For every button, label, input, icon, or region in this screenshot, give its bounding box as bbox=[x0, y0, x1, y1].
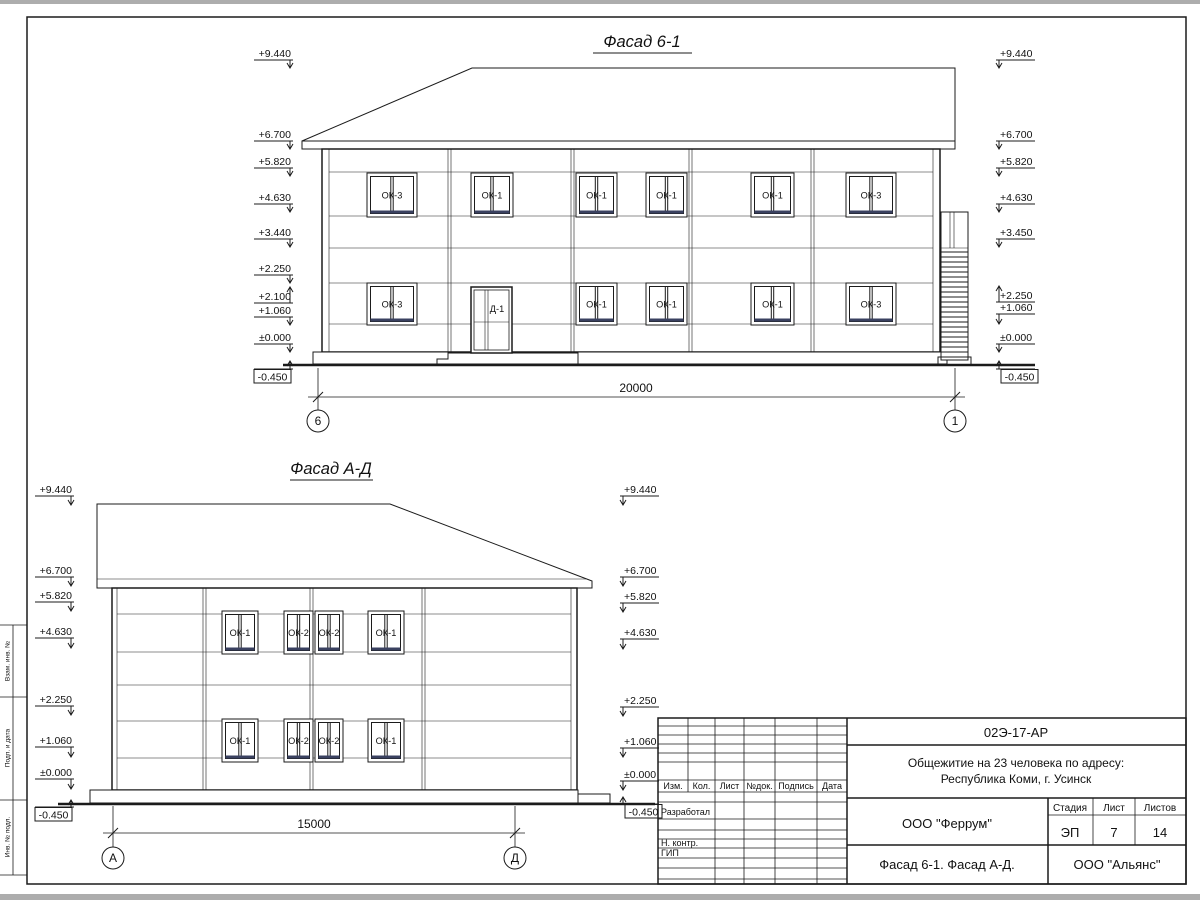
window-label: ОК-2 bbox=[319, 736, 340, 746]
elevation-mark: +3.440 bbox=[254, 227, 293, 247]
window: ОК-2 bbox=[315, 611, 343, 654]
elevation-mark: +2.250 bbox=[254, 263, 293, 283]
project-name-line2: Республика Коми, г. Усинск bbox=[941, 772, 1092, 786]
elevation-mark-value: +5.820 bbox=[259, 156, 292, 168]
elevation-mark: +1.060 bbox=[254, 305, 293, 325]
windows-lower-row: ОК-1ОК-2ОК-2ОК-1 bbox=[222, 719, 404, 762]
elevation-mark: ±0.000 bbox=[996, 332, 1035, 352]
col-header-kol: Кол. bbox=[693, 781, 711, 791]
window-label: ОК-1 bbox=[656, 300, 677, 310]
elevation-mark: +6.700 bbox=[254, 129, 293, 149]
window: ОК-3 bbox=[846, 173, 896, 217]
elevation-mark: ±0.000 bbox=[620, 769, 659, 790]
window: ОК-1 bbox=[751, 283, 794, 325]
design-org: ООО "Феррум" bbox=[902, 816, 992, 831]
elevation-mark-value: +3.450 bbox=[1000, 227, 1033, 239]
elevation-mark: +2.250 bbox=[35, 694, 74, 715]
row-label-gip: ГИП bbox=[661, 848, 679, 858]
elevation-mark-value: +4.630 bbox=[624, 627, 657, 639]
window-label: ОК-1 bbox=[376, 628, 397, 638]
window: ОК-1 bbox=[368, 611, 404, 654]
elevation-mark: -0.450 bbox=[620, 797, 662, 819]
elevation-mark-value: +2.250 bbox=[40, 694, 73, 706]
elevation-mark-value: +3.440 bbox=[259, 227, 292, 239]
window: ОК-1 bbox=[646, 173, 687, 217]
title-block-columns bbox=[688, 718, 817, 884]
window: ОК-1 bbox=[576, 283, 617, 325]
window-label: ОК-1 bbox=[230, 628, 251, 638]
windows-upper-row: ОК-1ОК-2ОК-2ОК-1 bbox=[222, 611, 404, 654]
window: ОК-1 bbox=[368, 719, 404, 762]
facade-a-d-title: Фасад А-Д bbox=[290, 460, 372, 478]
elevation-mark-value: -0.450 bbox=[1005, 372, 1035, 384]
elevation-marks-right: +9.440+6.700+5.820+4.630+2.250+1.060±0.0… bbox=[620, 484, 662, 819]
contractor-org: ООО "Альянс" bbox=[1074, 857, 1161, 872]
axis-label-right: 1 bbox=[952, 414, 959, 428]
elevation-mark-value: +2.250 bbox=[624, 695, 657, 707]
facade-6-1: Фасад 6-1 Д-1 ОК-3ОК-1ОК-1ОК-1ОК-1ОК-3 О… bbox=[254, 33, 1038, 432]
document-number: 02Э-17-АР bbox=[984, 725, 1048, 740]
elevation-mark-value: +1.060 bbox=[624, 736, 657, 748]
drawing-title: Фасад 6-1. Фасад А-Д. bbox=[879, 857, 1015, 872]
elevation-mark-value: ±0.000 bbox=[40, 767, 72, 779]
plinth bbox=[313, 352, 947, 364]
sheet-number: 7 bbox=[1110, 825, 1117, 840]
side-step bbox=[578, 794, 610, 803]
dimension-20000: 20000 6 1 bbox=[307, 368, 966, 432]
window-label: ОК-1 bbox=[656, 191, 677, 201]
window-label: ОК-1 bbox=[230, 736, 251, 746]
sheet-header: Лист bbox=[1103, 803, 1125, 814]
window: ОК-1 bbox=[222, 611, 258, 654]
elevation-mark-value: +9.440 bbox=[259, 48, 292, 60]
elevation-mark-value: +4.630 bbox=[40, 626, 73, 638]
elevation-marks-left: +9.440+6.700+5.820+4.630+3.440+2.250+2.1… bbox=[254, 48, 293, 384]
window-label: ОК-1 bbox=[376, 736, 397, 746]
elevation-mark: +6.700 bbox=[996, 129, 1035, 149]
axis-label-left: 6 bbox=[315, 414, 322, 428]
window-label: ОК-1 bbox=[762, 300, 783, 310]
col-header-izm: Изм. bbox=[663, 781, 682, 791]
elevation-mark-value: +9.440 bbox=[624, 484, 657, 496]
elevation-mark: +6.700 bbox=[35, 565, 74, 586]
elevation-mark-value: +4.630 bbox=[259, 192, 292, 204]
screen-edge-top bbox=[0, 0, 1200, 4]
elevation-mark-value: ±0.000 bbox=[259, 332, 291, 344]
elevation-mark: +2.250 bbox=[996, 286, 1035, 302]
elevation-mark-value: +9.440 bbox=[1000, 48, 1033, 60]
door-frame bbox=[471, 287, 512, 353]
elevation-marks-left: +9.440+6.700+5.820+4.630+2.250+1.060±0.0… bbox=[35, 484, 74, 822]
drawing-sheet: Взам. инв. № Подп. и дата Инв. № подл. Ф… bbox=[0, 0, 1200, 900]
col-header-podpis: Подпись bbox=[778, 781, 814, 791]
elevation-mark: ±0.000 bbox=[254, 332, 293, 352]
window-label: ОК-3 bbox=[382, 300, 403, 310]
elevation-mark-value: ±0.000 bbox=[1000, 332, 1032, 344]
elevation-mark: +5.820 bbox=[996, 156, 1035, 176]
plinth bbox=[90, 790, 578, 803]
elevation-mark-value: +1.060 bbox=[1000, 302, 1033, 314]
elevation-mark-value: +2.250 bbox=[259, 263, 292, 275]
elevation-mark: +4.630 bbox=[254, 192, 293, 212]
stage-header: Стадия bbox=[1053, 803, 1087, 814]
col-header-list: Лист bbox=[720, 781, 740, 791]
elevation-mark-value: +1.060 bbox=[259, 305, 292, 317]
window-label: ОК-2 bbox=[319, 628, 340, 638]
window-label: ОК-3 bbox=[861, 300, 882, 310]
window-label: ОК-3 bbox=[861, 191, 882, 201]
window: ОК-1 bbox=[751, 173, 794, 217]
elevation-mark-value: +4.630 bbox=[1000, 192, 1033, 204]
window: ОК-3 bbox=[367, 173, 417, 217]
window: ОК-2 bbox=[315, 719, 343, 762]
sheets-total: 14 bbox=[1153, 825, 1167, 840]
col-header-ndok: №док. bbox=[746, 781, 772, 791]
axis-label-right: Д bbox=[511, 851, 519, 865]
window: ОК-1 bbox=[471, 173, 513, 217]
col-header-data: Дата bbox=[822, 781, 842, 791]
facade-a-d: Фасад А-Д ОК-1ОК-2ОК-2ОК-1 ОК-1ОК-2ОК-2О… bbox=[35, 460, 662, 869]
elevation-mark-value: -0.450 bbox=[258, 372, 288, 384]
window-label: ОК-3 bbox=[382, 191, 403, 201]
fire-escape-ladder bbox=[938, 212, 971, 365]
side-stamp-label: Подп. и дата bbox=[5, 728, 12, 767]
elevation-mark-value: +2.100 bbox=[259, 291, 292, 303]
elevation-mark: +2.100 bbox=[254, 287, 293, 303]
window-label: ОК-2 bbox=[288, 736, 309, 746]
elevation-mark: +1.060 bbox=[35, 735, 74, 757]
window: ОК-1 bbox=[646, 283, 687, 325]
title-block-rows bbox=[658, 726, 847, 879]
elevation-mark-value: -0.450 bbox=[629, 807, 659, 819]
ladder-frame bbox=[941, 212, 968, 360]
elevation-mark: +1.060 bbox=[996, 302, 1035, 324]
door-label: Д-1 bbox=[490, 304, 504, 314]
window: ОК-1 bbox=[222, 719, 258, 762]
elevation-mark: +9.440 bbox=[254, 48, 293, 68]
elevation-mark: +5.820 bbox=[35, 590, 74, 611]
wall bbox=[112, 588, 577, 790]
elevation-mark: +9.440 bbox=[996, 48, 1035, 68]
screen-edge-bottom bbox=[0, 894, 1200, 900]
elevation-mark-value: +5.820 bbox=[1000, 156, 1033, 168]
side-stamp-label: Взам. инв. № bbox=[5, 641, 12, 681]
elevation-mark-value: +5.820 bbox=[624, 591, 657, 603]
dimension-value: 15000 bbox=[297, 817, 331, 831]
elevation-mark: +4.630 bbox=[996, 192, 1035, 212]
window: ОК-3 bbox=[846, 283, 896, 325]
window: ОК-2 bbox=[284, 719, 313, 762]
elevation-mark: +4.630 bbox=[35, 626, 74, 648]
elevation-mark: +6.700 bbox=[620, 565, 659, 586]
row-label-nkontr: Н. контр. bbox=[661, 838, 698, 848]
window: ОК-2 bbox=[284, 611, 313, 654]
window-label: ОК-1 bbox=[586, 300, 607, 310]
elevation-mark-value: +6.700 bbox=[1000, 129, 1033, 141]
dimension-value: 20000 bbox=[619, 381, 653, 395]
window-label: ОК-1 bbox=[586, 191, 607, 201]
side-stamp-label: Инв. № подл. bbox=[5, 817, 12, 858]
eaves-band bbox=[302, 141, 955, 149]
title-block: 02Э-17-АР Общежитие на 23 человека по ад… bbox=[658, 718, 1186, 884]
elevation-mark-value: +2.250 bbox=[1000, 290, 1033, 302]
axis-label-left: А bbox=[109, 851, 117, 865]
entrance-door: Д-1 bbox=[471, 287, 512, 353]
roof bbox=[97, 504, 592, 588]
elevation-mark: +2.250 bbox=[620, 695, 659, 716]
drawing-canvas: Взам. инв. № Подп. и дата Инв. № подл. Ф… bbox=[0, 0, 1200, 900]
elevation-mark: ±0.000 bbox=[35, 767, 74, 789]
elevation-mark: +9.440 bbox=[620, 484, 659, 505]
elevation-mark: +1.060 bbox=[620, 736, 659, 757]
window: ОК-3 bbox=[367, 283, 417, 325]
elevation-marks-right: +9.440+6.700+5.820+4.630+3.450+2.250+1.0… bbox=[996, 48, 1038, 384]
elevation-mark: +4.630 bbox=[620, 627, 659, 649]
elevation-mark-value: ±0.000 bbox=[624, 769, 656, 781]
stage-value: ЭП bbox=[1061, 825, 1080, 840]
elevation-mark-value: +5.820 bbox=[40, 590, 73, 602]
elevation-mark-value: +6.700 bbox=[259, 129, 292, 141]
facade-6-1-title: Фасад 6-1 bbox=[603, 33, 680, 51]
elevation-mark: +3.450 bbox=[996, 227, 1035, 247]
elevation-mark: +9.440 bbox=[35, 484, 74, 505]
row-label-razrabotal: Разработал bbox=[661, 807, 710, 817]
elevation-mark-value: -0.450 bbox=[39, 810, 69, 822]
window-label: ОК-2 bbox=[288, 628, 309, 638]
elevation-mark-value: +1.060 bbox=[40, 735, 73, 747]
window-label: ОК-1 bbox=[482, 191, 503, 201]
elevation-mark-value: +6.700 bbox=[624, 565, 657, 577]
elevation-mark-value: +9.440 bbox=[40, 484, 73, 496]
project-name-line1: Общежитие на 23 человека по адресу: bbox=[908, 756, 1124, 770]
roof bbox=[302, 68, 955, 141]
elevation-mark-value: +6.700 bbox=[40, 565, 73, 577]
window-label: ОК-1 bbox=[762, 191, 783, 201]
sheets-header: Листов bbox=[1144, 803, 1177, 814]
window: ОК-1 bbox=[576, 173, 617, 217]
elevation-mark: +5.820 bbox=[254, 156, 293, 176]
elevation-mark: +5.820 bbox=[620, 591, 659, 612]
dimension-15000: 15000 А Д bbox=[102, 806, 526, 869]
